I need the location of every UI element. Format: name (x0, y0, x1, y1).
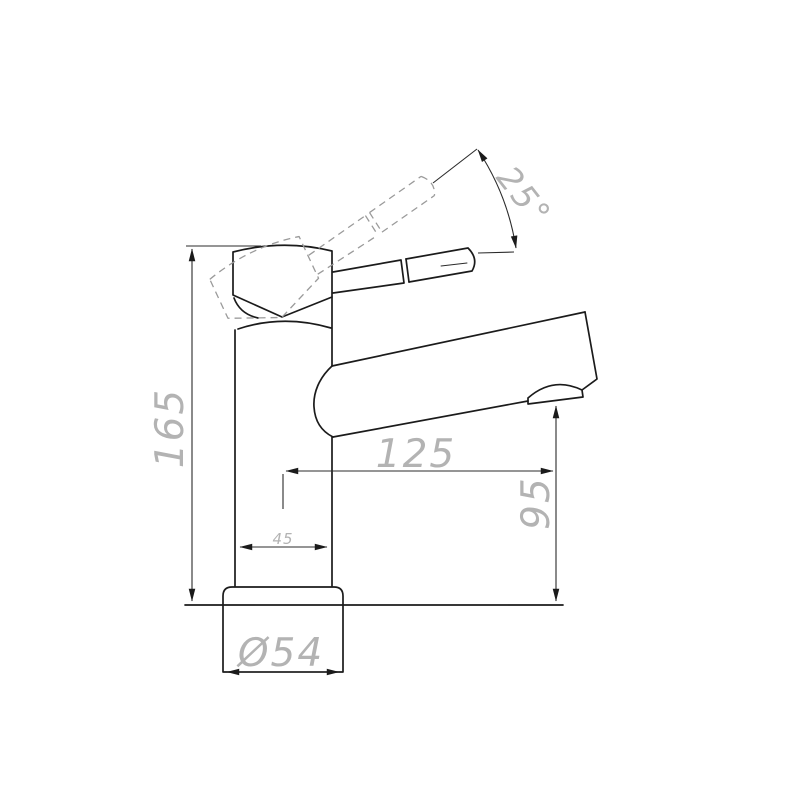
dim-45-label: 45 (272, 530, 293, 548)
dim-95-label: 95 (514, 476, 559, 530)
handle-head-outline (233, 245, 332, 317)
dim-165-label: 165 (148, 388, 193, 468)
dimension-spout-reach: 125 (283, 432, 553, 509)
dim-125-label: 125 (376, 432, 456, 477)
dimension-lever-angle: 25° (433, 149, 559, 253)
dimension-base-diameter: Ø54 (227, 631, 339, 676)
dim-54-label: Ø54 (236, 631, 324, 676)
lever-rod-outline (333, 259, 409, 293)
dim-25deg-label: 25° (489, 159, 559, 234)
dimension-body-width: 45 (240, 530, 327, 548)
body-top-dome-arc (238, 321, 331, 329)
dimension-outlet-height: 95 (514, 406, 559, 601)
spout-body-fillet-curve (314, 366, 333, 437)
spout-tip-face (582, 312, 597, 390)
faucet-drawing-svg: 165 125 95 45 Ø54 25° (0, 0, 800, 800)
lever-grip-highlight-line (441, 263, 467, 266)
technical-drawing-canvas: 165 125 95 45 Ø54 25° (0, 0, 800, 800)
aerator-outline (528, 385, 583, 404)
spout-top-edge (332, 312, 585, 366)
angle-extension-upper (433, 149, 477, 183)
lever-grip-outline (406, 248, 475, 282)
angle-extension-lower (478, 252, 514, 253)
